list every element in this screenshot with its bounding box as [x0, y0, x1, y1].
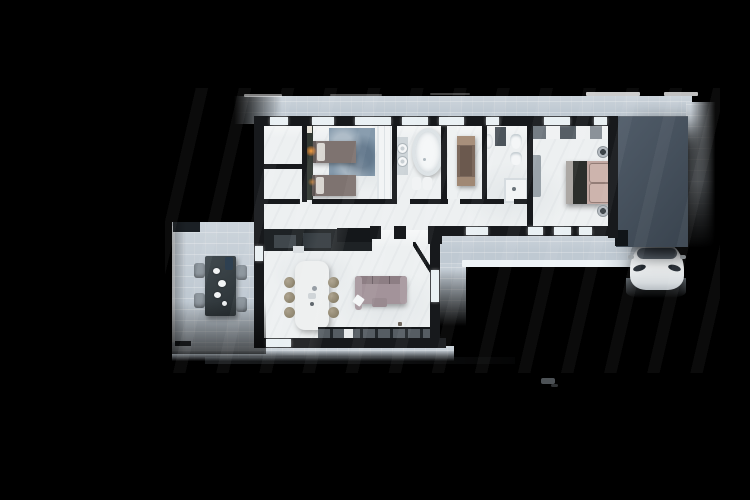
shower-drain [512, 187, 516, 191]
wall-partition [527, 120, 533, 232]
sofa-seam [372, 276, 373, 284]
floor-item [398, 322, 402, 326]
bed-headboard [566, 161, 573, 204]
wall-partition [392, 120, 397, 204]
ground-speck [551, 384, 558, 387]
window [528, 227, 543, 235]
wall-partition [262, 164, 304, 169]
island-faucet [312, 286, 317, 291]
wall-exterior-left [254, 116, 264, 236]
wall-stub [394, 226, 406, 239]
window [270, 117, 288, 125]
window [544, 117, 570, 125]
wall-living-left [254, 226, 264, 348]
wall-partition [482, 120, 487, 204]
bed-pillow [317, 143, 325, 161]
wall-exterior-right [608, 116, 618, 238]
sofa-arm [400, 276, 407, 304]
tub-drain [423, 158, 426, 161]
bar-stool [328, 307, 339, 318]
car-mirror-left [628, 255, 634, 259]
bedside-lamp-glow [306, 146, 316, 156]
wall-partition [302, 120, 307, 202]
kitchen-upper-cabinet [337, 228, 372, 242]
wall-hallway [514, 199, 527, 204]
window [402, 117, 428, 125]
table-plate [213, 268, 220, 274]
table-plate [222, 301, 227, 306]
wall-hallway [460, 199, 504, 204]
terrace-edge-highlight [664, 92, 698, 96]
terrace-sunlit-edge [462, 260, 639, 267]
car-mirror-right [680, 255, 686, 259]
outdoor-chair [236, 297, 247, 312]
sofa-arm [457, 136, 475, 145]
round-sink [397, 156, 408, 167]
wall-hallway [262, 199, 300, 204]
bedside-lamp-glow [308, 178, 316, 186]
open-door-leaf [413, 242, 433, 274]
glass-door [266, 339, 291, 347]
wall-stub [370, 226, 381, 239]
floorplan-render [0, 0, 750, 500]
island-sink [308, 293, 316, 299]
table-bottle [225, 257, 233, 270]
toilet [510, 134, 522, 149]
bath-mat [423, 177, 432, 190]
window [355, 117, 391, 125]
terrace-shadow [205, 357, 515, 364]
terrace-right-strip [686, 102, 718, 248]
terrace-edge-highlight [172, 226, 175, 342]
wall-art [307, 125, 312, 133]
terrace-edge-highlight [330, 94, 382, 96]
outdoor-chair [194, 263, 205, 278]
glass-door [431, 270, 439, 302]
window [579, 227, 592, 235]
wall-shelf [495, 127, 506, 146]
wall-hallway [312, 199, 394, 204]
window [439, 117, 464, 125]
study-cabinet [448, 125, 457, 199]
round-sink [397, 143, 408, 154]
terrace-edge-highlight [586, 92, 640, 96]
wardrobe [377, 126, 391, 202]
glass-door [255, 246, 263, 261]
car-windshield [637, 248, 677, 259]
sofa-seam [389, 276, 390, 284]
bed-throw-blanket [573, 161, 587, 204]
bar-stool [328, 292, 339, 303]
outdoor-chair [236, 265, 247, 280]
planter [173, 222, 200, 232]
sofa-arm [457, 177, 475, 186]
window [486, 117, 499, 125]
window [594, 117, 607, 125]
island-item [310, 302, 314, 306]
sofa-seat [460, 146, 472, 176]
window [312, 117, 334, 125]
table-plate [218, 280, 226, 287]
bar-stool [284, 292, 295, 303]
kitchen-counter-block [303, 233, 331, 248]
bar-stool [284, 277, 295, 288]
wall-hallway [410, 199, 448, 204]
bidet [510, 152, 522, 165]
bar-stool [284, 307, 295, 318]
bath-mat [412, 177, 421, 190]
bar-stool [328, 277, 339, 288]
kitchen-sink-white [293, 246, 304, 253]
outdoor-chair [194, 293, 205, 308]
terrace-edge-highlight [244, 94, 282, 97]
freestanding-bathtub [412, 128, 444, 176]
terrace-edge-highlight [430, 93, 470, 95]
closet-row [532, 124, 610, 139]
carport-roof [616, 116, 688, 247]
table-plate [214, 292, 221, 298]
bed-pillow [316, 177, 324, 194]
window [554, 227, 571, 235]
sofa-cushion [372, 298, 387, 307]
wall-partition [441, 120, 447, 204]
window [466, 227, 488, 235]
